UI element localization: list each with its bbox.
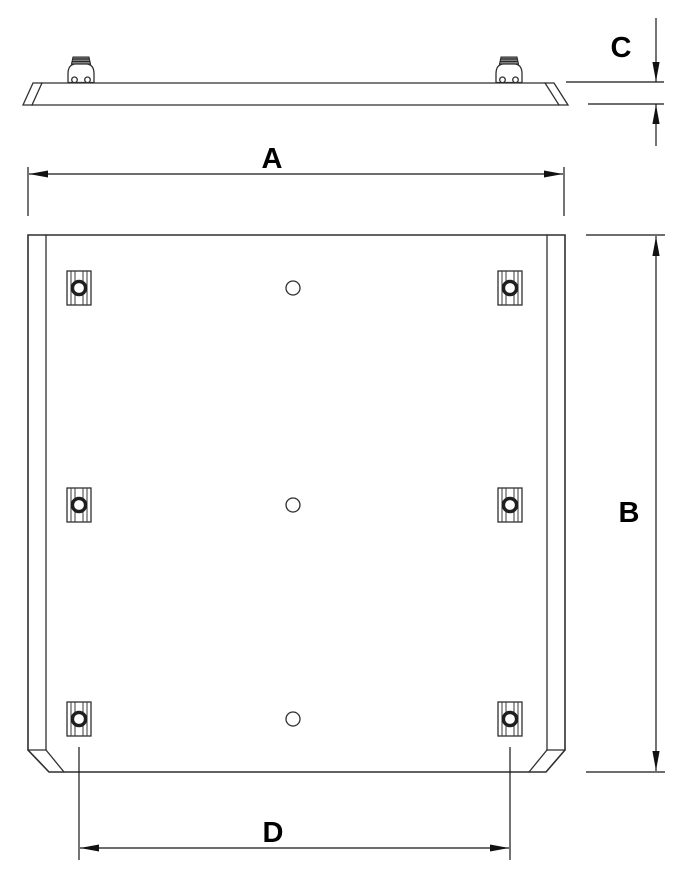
mounting-bracket-middle-right xyxy=(498,488,522,522)
spring-clip-left xyxy=(68,57,94,83)
side-view-outline xyxy=(23,83,568,105)
drawing-canvas: C A B xyxy=(0,0,682,874)
panel-dimension-drawing: C A B xyxy=(0,0,682,874)
mounting-bracket-bottom-left xyxy=(67,702,91,736)
dimension-a: A xyxy=(28,143,564,216)
dim-a-label: A xyxy=(262,143,283,175)
side-view xyxy=(23,57,568,105)
dim-c-label: C xyxy=(611,32,632,64)
dim-b-label: B xyxy=(619,497,640,529)
mounting-bracket-top-right xyxy=(498,271,522,305)
dim-d-arrow-right xyxy=(490,845,509,852)
dim-d-arrow-left xyxy=(80,845,99,852)
spring-clip-right xyxy=(496,57,522,83)
center-hole-middle xyxy=(286,498,300,512)
dim-a-arrow-right xyxy=(544,171,563,178)
dimension-c: C xyxy=(566,18,664,146)
mounting-bracket-bottom-right xyxy=(498,702,522,736)
mounting-bracket-middle-left xyxy=(67,488,91,522)
dim-d-label: D xyxy=(263,817,284,849)
mounting-bracket-top-left xyxy=(67,271,91,305)
front-view xyxy=(28,235,565,772)
dim-b-arrow-up xyxy=(652,237,659,257)
dim-c-arrow-down xyxy=(652,62,659,82)
dim-b-arrow-down xyxy=(652,751,659,771)
dim-a-arrow-left xyxy=(29,171,48,178)
center-hole-bottom xyxy=(286,712,300,726)
dimension-b: B xyxy=(586,235,665,772)
dim-c-arrow-up xyxy=(652,105,659,125)
center-hole-top xyxy=(286,281,300,295)
